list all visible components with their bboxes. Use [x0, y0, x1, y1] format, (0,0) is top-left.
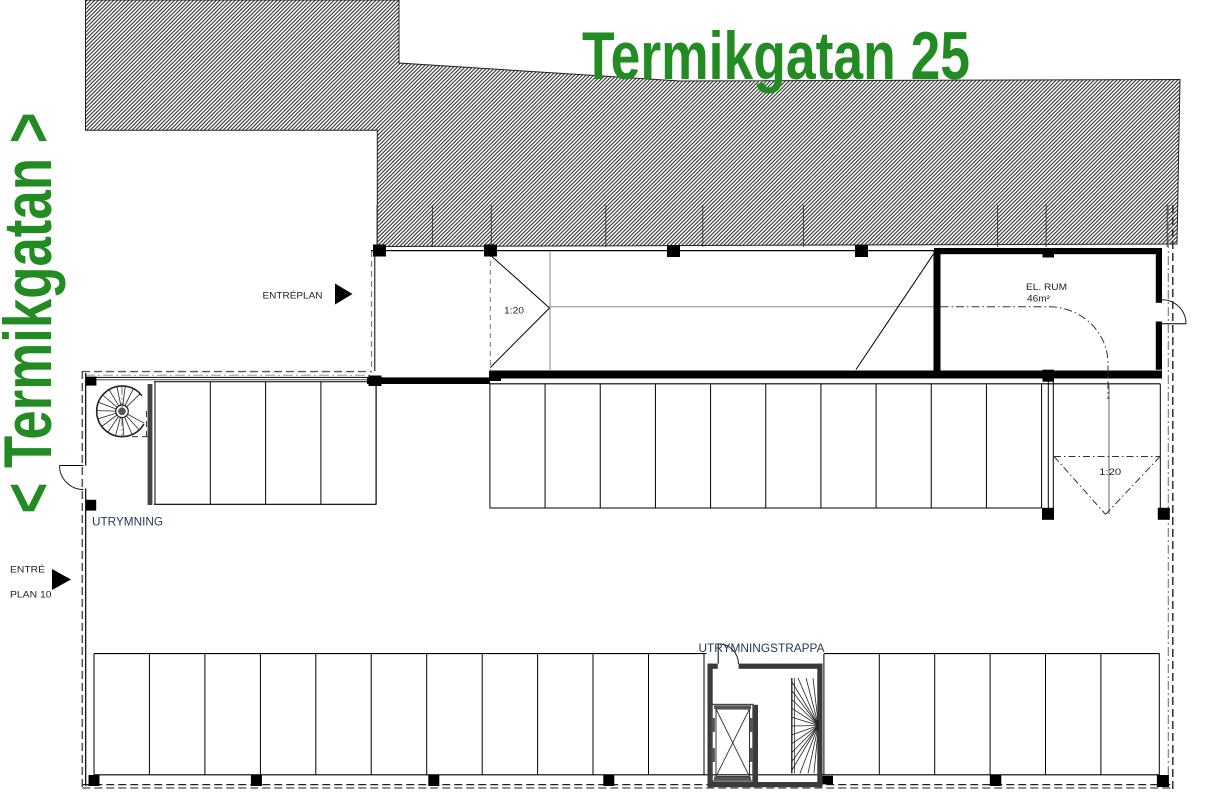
svg-text:UTRYMNING: UTRYMNING — [92, 515, 163, 529]
svg-text:ENTRÉPLAN: ENTRÉPLAN — [263, 291, 323, 302]
svg-text:46m²: 46m² — [1027, 294, 1050, 304]
svg-text:< Termikgatan >: < Termikgatan > — [0, 113, 66, 514]
svg-text:PLAN 10: PLAN 10 — [10, 589, 52, 600]
svg-text:UTRYMNINGSTRAPPA: UTRYMNINGSTRAPPA — [699, 641, 826, 655]
svg-text:EL. RUM: EL. RUM — [1026, 282, 1067, 292]
svg-text:1:20: 1:20 — [504, 306, 524, 316]
svg-text:ENTRÉ: ENTRÉ — [10, 564, 45, 575]
svg-text:Termikgatan 25: Termikgatan 25 — [582, 18, 970, 94]
svg-text:1:20: 1:20 — [1099, 467, 1121, 477]
